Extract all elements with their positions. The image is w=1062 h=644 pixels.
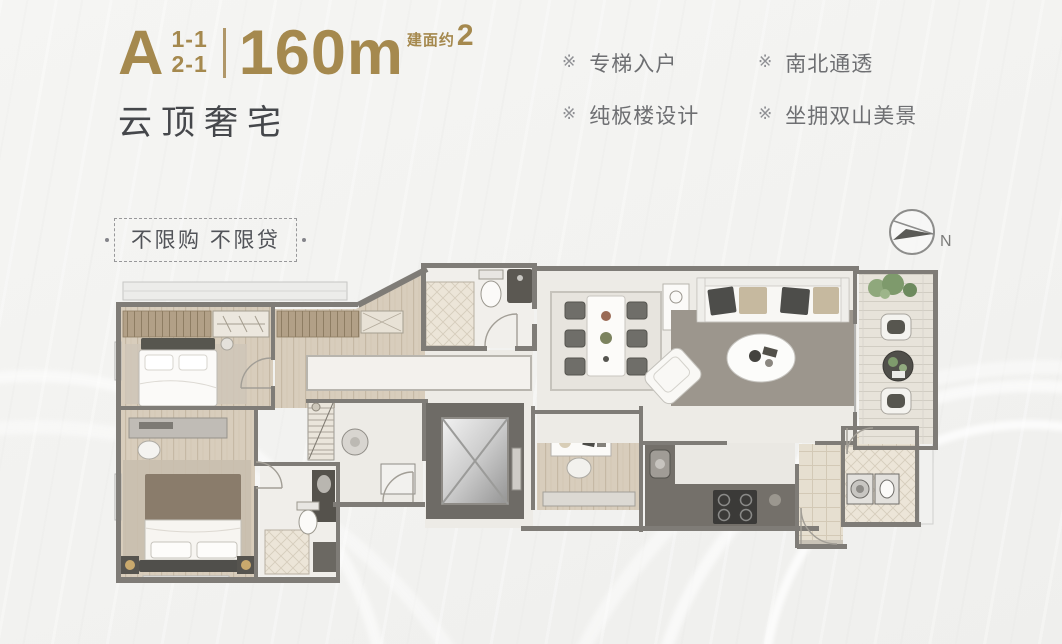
floor-plan	[113, 256, 943, 588]
feature-label: 纯板楼设计	[589, 100, 699, 130]
unit-number-bottom: 2-1	[172, 52, 208, 77]
area-value: 160m	[239, 22, 404, 85]
compass-north-label: N	[940, 233, 952, 250]
feature-list: ※ 专梯入户 ※ 南北通透 ※ 纯板楼设计 ※ 坐拥双山美景	[562, 48, 917, 130]
coffee-table	[727, 334, 795, 382]
balcony-chair	[881, 388, 911, 414]
room-balcony	[859, 273, 935, 444]
feature-item: ※ 纯板楼设计	[562, 100, 758, 130]
header: A 1-1 2-1 160m 建面约 2 云顶奢宅	[118, 22, 474, 144]
low-cabinet	[543, 492, 635, 506]
room-bedroom-master	[119, 410, 255, 577]
desk-chair	[567, 458, 591, 478]
room-ensuite-bathroom	[260, 466, 338, 576]
page-title: 云顶奢宅	[118, 95, 474, 144]
unit-numbers: 1-1 2-1	[172, 22, 208, 77]
hall-runner	[307, 356, 531, 390]
balcony-table	[883, 351, 913, 381]
feature-item: ※ 南北通透	[758, 48, 917, 78]
dining-table	[587, 296, 625, 376]
toilet	[297, 502, 319, 534]
unit-letter: A	[118, 22, 165, 85]
policy-badge-label: 不限购 不限贷	[131, 229, 280, 252]
feature-label: 南北通透	[785, 48, 873, 78]
area-exponent: 2	[457, 19, 474, 53]
washing-machine	[847, 474, 873, 504]
shaft	[919, 432, 933, 524]
room-bedroom-secondary	[119, 307, 273, 408]
area-approx-label: 建面约	[407, 29, 455, 50]
room-elevator	[426, 403, 524, 519]
reference-mark-icon: ※	[758, 104, 773, 124]
poster: A 1-1 2-1 160m 建面约 2 云顶奢宅 ※ 专梯入户 ※ 南北通透 …	[0, 0, 1062, 644]
toilet	[479, 270, 503, 307]
room-laundry-bathroom	[845, 432, 933, 524]
area-extra: 建面约 2	[407, 22, 474, 53]
reference-mark-icon: ※	[562, 52, 577, 72]
sink-unit	[875, 474, 899, 504]
feature-label: 坐拥双山美景	[785, 100, 917, 130]
bathtub	[507, 269, 533, 303]
sofa	[697, 278, 849, 322]
feature-label: 专梯入户	[589, 48, 677, 78]
unit-title: A 1-1 2-1 160m 建面约 2	[118, 22, 474, 85]
unit-number-top: 1-1	[172, 27, 208, 52]
balcony-glass	[854, 324, 856, 412]
feature-item: ※ 坐拥双山美景	[758, 100, 917, 130]
balcony-chair	[881, 314, 911, 340]
title-divider	[223, 28, 226, 78]
stove	[713, 490, 757, 524]
feature-item: ※ 专梯入户	[562, 48, 758, 78]
reference-mark-icon: ※	[562, 104, 577, 124]
reference-mark-icon: ※	[758, 52, 773, 72]
compass-icon: N	[884, 202, 970, 264]
stairs	[308, 402, 334, 460]
